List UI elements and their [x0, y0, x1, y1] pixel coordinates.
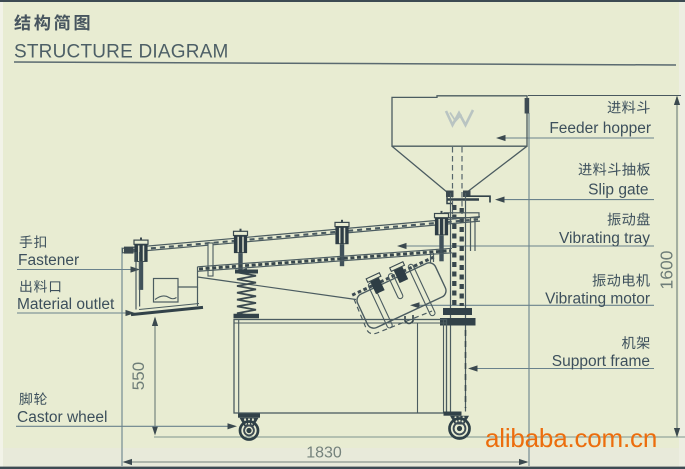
svg-text:Support frame: Support frame [552, 353, 650, 370]
svg-text:Fastener: Fastener [18, 252, 79, 269]
svg-text:1830: 1830 [306, 445, 342, 462]
svg-text:1600: 1600 [657, 250, 677, 289]
svg-text:Slip gate: Slip gate [588, 182, 648, 199]
svg-text:550: 550 [129, 362, 148, 390]
svg-text:alibaba.com.cn: alibaba.com.cn [485, 423, 657, 453]
svg-text:Vibrating tray: Vibrating tray [559, 230, 650, 247]
svg-text:Vibrating motor: Vibrating motor [545, 291, 650, 308]
svg-text:Material outlet: Material outlet [17, 296, 115, 313]
svg-text:Castor wheel: Castor wheel [17, 409, 107, 426]
svg-text:STRUCTURE DIAGRAM: STRUCTURE DIAGRAM [14, 42, 229, 63]
svg-text:Feeder hopper: Feeder hopper [549, 120, 651, 137]
